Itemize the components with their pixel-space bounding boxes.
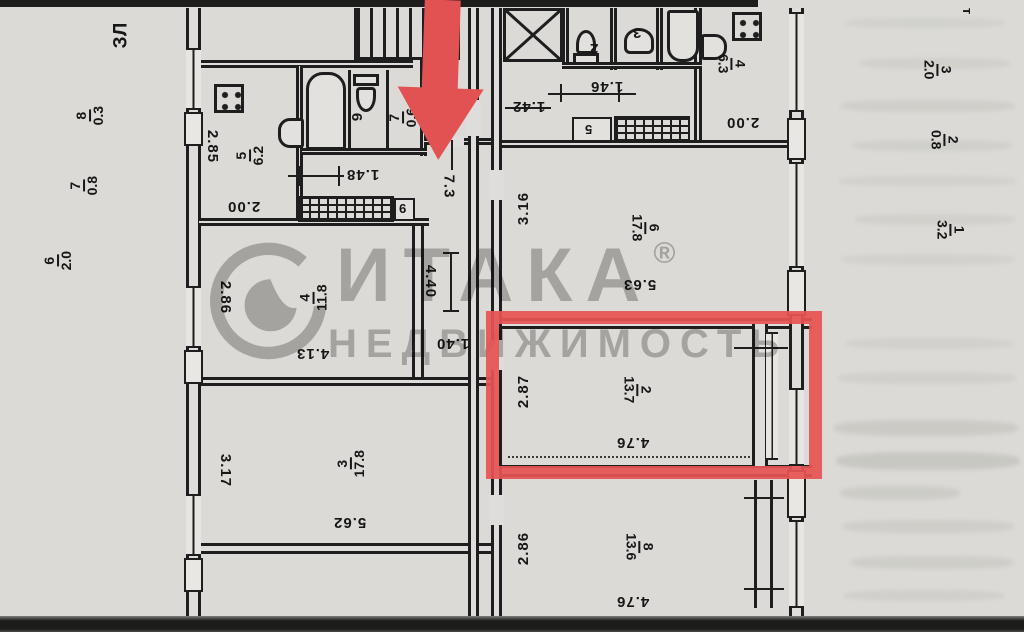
dim-tick [298, 166, 300, 186]
pointer-arrow [395, 0, 489, 161]
dim-label: 2.85 [204, 130, 221, 163]
wall [199, 543, 502, 554]
elevator-shaft [503, 8, 563, 62]
dim-label: 2.00 [726, 114, 759, 131]
wall [199, 60, 413, 68]
wall [562, 8, 569, 66]
room-area-corridor: 7.3 [440, 175, 457, 199]
door-opening [489, 170, 504, 200]
dim-tick [288, 175, 344, 177]
bleed-smudge [840, 486, 960, 500]
stove-icon [214, 84, 244, 113]
highlight-rectangle [486, 311, 822, 479]
bleed-smudge [838, 176, 1016, 186]
arrow-shaft [422, 0, 461, 91]
margin-fraction: 3 2.0 [922, 60, 953, 79]
bleed-smudge [842, 254, 1014, 265]
wall-pier [787, 118, 806, 160]
window [186, 286, 201, 348]
dim-label: 2.00 [227, 198, 260, 215]
dim-label: 4.13 [296, 345, 329, 362]
window [186, 48, 201, 110]
dim-label: 2.86 [217, 281, 234, 314]
floor-plan-scan: ЗЛ 8 0.3 7 0.8 6 2.0 3 2.0 2 0.8 1 3.2 т… [0, 0, 1024, 632]
wall [199, 377, 492, 386]
dim-label: 3.16 [515, 192, 532, 225]
dim-tick [443, 310, 459, 312]
bleed-smudge [834, 420, 1018, 436]
margin-corner-mark: т [960, 8, 975, 15]
bleed-smudge [844, 590, 1004, 601]
vent-grid [298, 196, 394, 222]
margin-fraction: 7 0.8 [68, 176, 99, 195]
margin-corner-label: ЗЛ [110, 22, 132, 49]
room-label-kitchen: 4 6.3 [716, 54, 747, 73]
bleed-smudge [850, 556, 1014, 569]
registered-mark-icon: ® [653, 237, 675, 270]
wall-pier [184, 350, 203, 384]
room-label-kitchen: 5 6.2 [234, 146, 265, 165]
dim-label: 1.40 [436, 335, 469, 352]
margin-fraction: 8 0.3 [74, 106, 105, 125]
wall-pier [787, 270, 806, 316]
room-label-3: 3 17.8 [335, 450, 366, 477]
wall-pier [184, 558, 203, 592]
margin-fraction: 6 2.0 [42, 251, 73, 270]
wall [412, 226, 424, 386]
dim-label: 4.40 [422, 265, 439, 298]
window [789, 520, 804, 608]
window [789, 162, 804, 268]
bleed-smudge [838, 372, 1016, 384]
dim-label: 3.17 [217, 454, 234, 487]
window [789, 12, 804, 112]
dim-label: 2.86 [515, 532, 532, 565]
toilet-bowl-icon [356, 87, 376, 112]
dim-tick [338, 166, 340, 186]
wall-pier [184, 112, 203, 146]
wall [610, 8, 617, 70]
dim-tick [744, 497, 784, 499]
window [186, 494, 201, 556]
door-opening [489, 495, 504, 525]
room-label-4: 4 11.8 [298, 284, 329, 310]
room-label-8: 8 13.6 [624, 533, 655, 560]
toilet-tank-icon [353, 74, 379, 86]
room-label-wc: 2 [589, 40, 598, 57]
room-label-washroom: 3 [632, 24, 641, 41]
kitchen-sink-icon [278, 118, 304, 148]
scan-edge-top [0, 0, 758, 7]
bleed-smudge [840, 100, 1015, 112]
vent-box-glyph: 9 [398, 201, 406, 216]
dim-label: 4.76 [616, 593, 649, 610]
bathtub-icon [667, 10, 699, 62]
room-label-wc: 6 [348, 113, 365, 122]
bleed-smudge [836, 452, 1020, 470]
room-label-6: 6 17.8 [630, 214, 661, 241]
vent-grid [614, 116, 690, 143]
stove-icon [732, 12, 762, 41]
bleed-smudge [846, 338, 1014, 349]
wall [656, 8, 663, 70]
arrow-head [395, 86, 483, 161]
dim-tick [450, 252, 452, 312]
dim-tick [560, 84, 562, 102]
wall [348, 70, 351, 152]
dim-label: 1.42 [512, 98, 545, 115]
dim-label: 1.48 [346, 166, 379, 183]
scan-edge-bottom [0, 616, 1024, 632]
bathtub-icon [306, 72, 346, 150]
dim-label: 5.62 [333, 514, 366, 531]
margin-fraction: 2 0.8 [929, 130, 960, 149]
dim-tick [744, 588, 784, 590]
margin-fraction: 1 3.2 [935, 220, 966, 239]
bleed-smudge [842, 520, 1014, 533]
dim-tick [443, 252, 459, 254]
vent-box-glyph: 5 [584, 122, 592, 137]
dim-label: 5.63 [623, 276, 656, 293]
bleed-smudge [845, 18, 1005, 28]
dim-label: 1.46 [590, 78, 623, 95]
